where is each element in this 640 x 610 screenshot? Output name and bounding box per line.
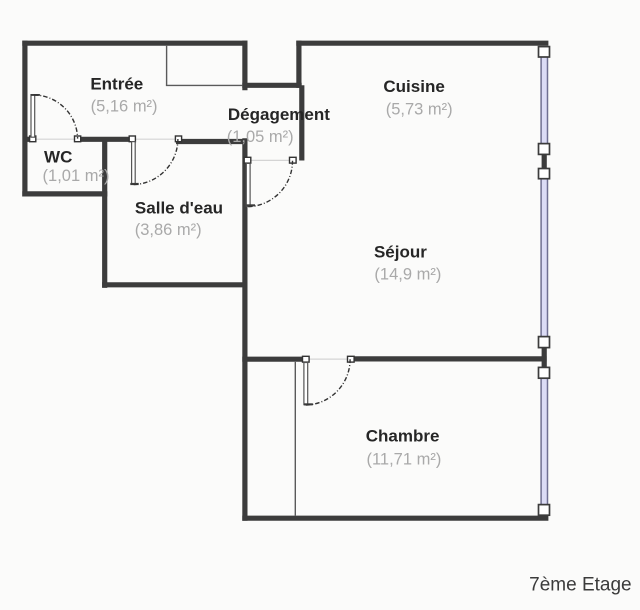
svg-text:Entrée: Entrée <box>90 74 143 93</box>
svg-text:Séjour: Séjour <box>374 243 427 262</box>
svg-text:(11,71 m²): (11,71 m²) <box>366 451 441 469</box>
svg-text:(5,73 m²): (5,73 m²) <box>386 100 453 118</box>
svg-text:Dégagement: Dégagement <box>228 105 330 124</box>
svg-text:(14,9 m²): (14,9 m²) <box>374 265 441 283</box>
svg-text:(1,01 m²): (1,01 m²) <box>43 167 110 185</box>
svg-text:(5,16 m²): (5,16 m²) <box>91 98 158 116</box>
svg-text:7ème Etage: 7ème Etage <box>529 574 631 595</box>
svg-text:Chambre: Chambre <box>366 427 440 446</box>
svg-text:(1,05 m²): (1,05 m²) <box>227 128 294 146</box>
svg-text:WC: WC <box>44 148 72 167</box>
svg-text:Cuisine: Cuisine <box>383 77 444 96</box>
svg-text:Salle d'eau: Salle d'eau <box>135 198 223 217</box>
svg-text:(3,86 m²): (3,86 m²) <box>135 221 202 239</box>
